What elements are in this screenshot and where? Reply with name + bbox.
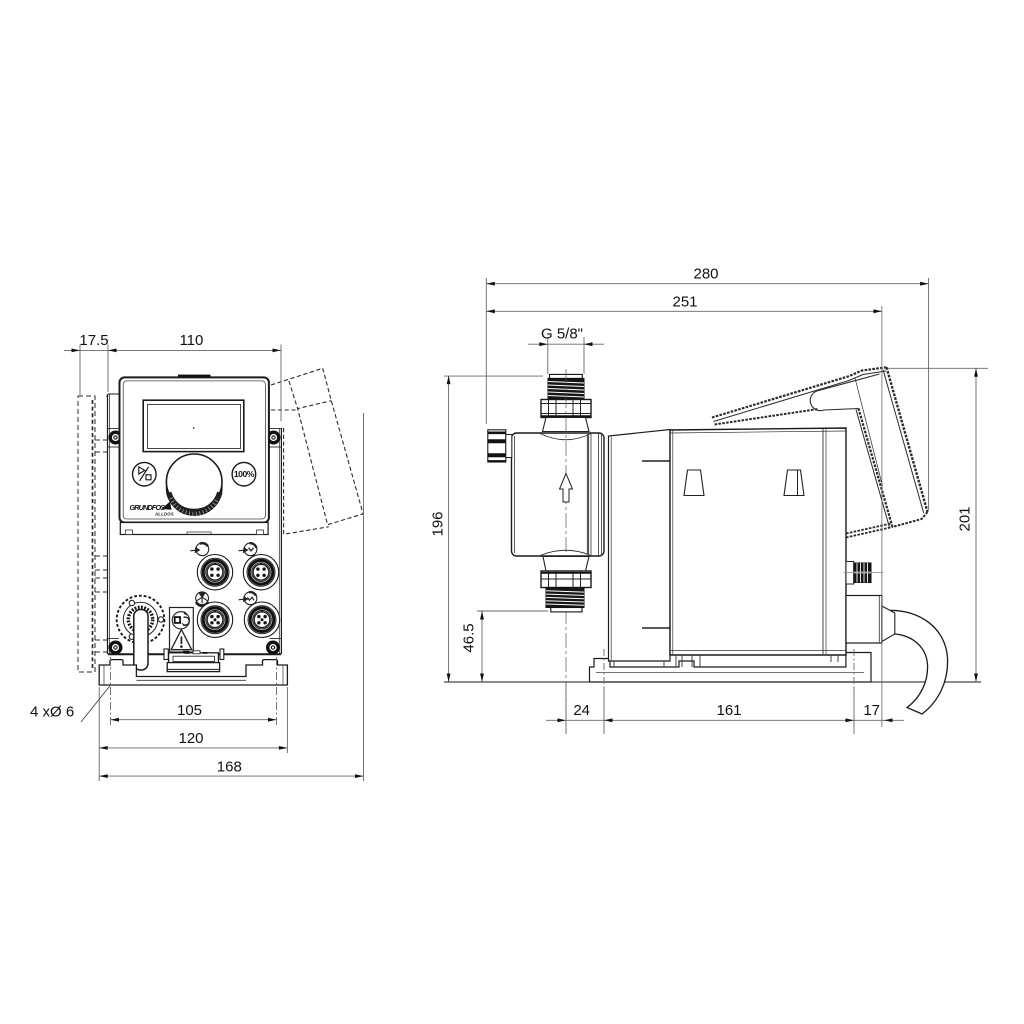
svg-text:G 5/8": G 5/8" bbox=[541, 326, 583, 343]
svg-text:280: 280 bbox=[693, 266, 718, 283]
svg-text:46.5: 46.5 bbox=[461, 623, 478, 652]
svg-text:17.5: 17.5 bbox=[79, 332, 108, 349]
svg-text:201: 201 bbox=[957, 506, 974, 531]
svg-text:17: 17 bbox=[863, 702, 880, 719]
svg-text:ALLDOS: ALLDOS bbox=[154, 511, 174, 516]
svg-text:105: 105 bbox=[177, 702, 202, 719]
svg-text:161: 161 bbox=[716, 702, 741, 719]
svg-text:100%: 100% bbox=[234, 469, 255, 479]
svg-text:196: 196 bbox=[430, 511, 447, 536]
svg-text:110: 110 bbox=[179, 332, 203, 349]
svg-text:24: 24 bbox=[573, 702, 590, 719]
svg-text:251: 251 bbox=[672, 293, 697, 310]
svg-text:120: 120 bbox=[178, 730, 203, 747]
svg-text:4 xØ 6: 4 xØ 6 bbox=[30, 704, 74, 721]
svg-text:168: 168 bbox=[217, 758, 242, 775]
